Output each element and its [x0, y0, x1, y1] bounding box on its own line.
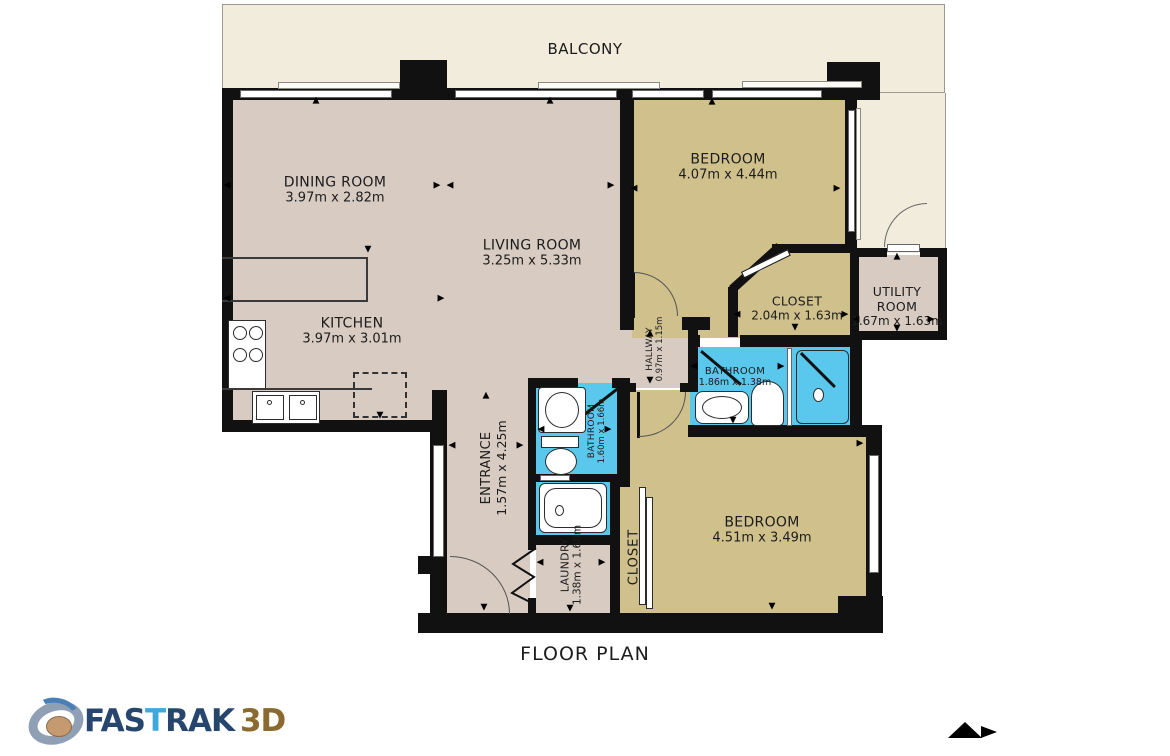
column-1	[400, 60, 447, 98]
shower-right-wall	[850, 335, 862, 437]
dimension-arrow: ▼	[894, 325, 901, 334]
room-dims: 3.97m x 2.82m	[284, 191, 386, 206]
page-title: FLOOR PLAN	[520, 643, 650, 665]
room-label-bathroom-main: BATHROOM 1.86m x 1.38m	[699, 366, 771, 388]
dimension-arrow: ▶	[599, 559, 606, 568]
room-dims: 1.86m x 1.38m	[699, 377, 771, 388]
dimension-arrow: ▼	[730, 417, 737, 426]
room-name: HALLWAY	[645, 317, 655, 382]
room-label-living: LIVING ROOM 3.25m x 5.33m	[482, 238, 581, 269]
room-dims: 1.57m x 4.25m	[494, 420, 509, 515]
room-label-dining: DINING ROOM 3.97m x 2.82m	[284, 175, 386, 206]
room-label-balcony: BALCONY	[547, 40, 622, 58]
bedroom1-bottom-wall-b	[682, 317, 710, 330]
dimension-arrow: ◀	[734, 311, 741, 320]
room-name: BATHROOM	[699, 366, 771, 377]
door-threshold	[540, 475, 570, 481]
dimension-arrow: ▲	[547, 97, 554, 106]
room-dims: 4.51m x 3.49m	[712, 531, 811, 546]
dimension-arrow: ▲	[647, 330, 654, 339]
floor-plan-canvas: BALCONY DINING ROOM 3.97m x 2.82m LIVING…	[0, 0, 1170, 738]
room-name: CLOSET	[751, 294, 843, 309]
room-dims: 4.07m x 4.44m	[678, 168, 777, 183]
window-sill	[742, 81, 862, 88]
ensuite-sink-basin	[545, 392, 579, 428]
room-dims: 3.97m x 3.01m	[302, 332, 401, 347]
room-label-closet-2: CLOSET	[627, 529, 642, 586]
column-2	[827, 62, 880, 98]
window	[433, 445, 444, 557]
shower-drain-icon	[813, 388, 824, 402]
dimension-arrow: ▶	[842, 311, 849, 320]
room-name: DINING ROOM	[284, 175, 386, 191]
compass-triangle-up	[948, 722, 982, 738]
room-name: BATHROOM	[587, 399, 597, 464]
counter-edge	[366, 257, 368, 302]
room-label-closet-1: CLOSET 2.04m x 1.63m	[751, 294, 843, 323]
dimension-arrow: ◀	[449, 442, 456, 451]
faucet-icon	[267, 400, 272, 405]
dimension-arrow: ▶	[605, 426, 612, 435]
bathrow-top-wall-a	[688, 335, 700, 347]
room-name: LAUNDRY	[559, 525, 572, 605]
window	[632, 90, 704, 98]
bottom-wall	[418, 613, 883, 633]
logo-text: FASTRAK3D	[84, 703, 285, 739]
hallway-bottom-jamb-b	[680, 383, 690, 392]
kitchen-right-wall	[432, 390, 447, 432]
sliding-door-panel	[646, 497, 653, 609]
kitchen-sink-bowl	[256, 395, 284, 420]
entry-step-wall	[418, 556, 447, 574]
dimension-arrow: ◀	[631, 185, 638, 194]
dimension-arrow: ▼	[567, 605, 574, 614]
entrance-right-wall-a	[528, 378, 536, 550]
kitchen-sink-bowl	[289, 395, 317, 420]
dimension-arrow: ▶	[928, 316, 935, 325]
counter-edge	[222, 300, 368, 302]
dimension-arrow: ▶	[434, 182, 441, 191]
room-dims: 2.04m x 1.63m	[751, 309, 843, 323]
room-name: LIVING ROOM	[482, 238, 581, 254]
room-name: KITCHEN	[302, 316, 401, 332]
dimension-arrow: ◀	[691, 363, 698, 372]
laundry-right-wall	[610, 480, 620, 615]
window	[848, 110, 855, 232]
counter-edge	[222, 388, 372, 390]
room-dims: 0.97m x 1.15m	[655, 317, 665, 382]
dimension-arrow: ▶	[778, 363, 785, 372]
room-label-bedroom-2: BEDROOM 4.51m x 3.49m	[712, 515, 811, 546]
room-label-bedroom-1: BEDROOM 4.07m x 4.44m	[678, 152, 777, 183]
room-name: BEDROOM	[678, 152, 777, 168]
room-dims: 3.25m x 5.33m	[482, 254, 581, 269]
dimension-arrow: ▼	[647, 377, 654, 386]
dimension-arrow: ◀	[537, 559, 544, 568]
room-name: BALCONY	[547, 40, 622, 58]
logo-text-rak: RAK	[165, 703, 234, 739]
window	[869, 455, 879, 573]
dimension-arrow: ▲	[313, 97, 320, 106]
dimension-arrow: ▼	[365, 246, 372, 255]
shower-divider	[787, 348, 792, 426]
room-name: BEDROOM	[712, 515, 811, 531]
bedroom2-top-wall	[688, 425, 868, 437]
dimension-arrow: ▼	[481, 604, 488, 613]
dimension-arrow: ▼	[769, 603, 776, 612]
logo-text-3d: 3D	[240, 703, 285, 739]
dimension-arrow: ▶	[834, 185, 841, 194]
dimension-arrow: ▶	[438, 295, 445, 304]
compass-triangle-right	[981, 726, 997, 738]
shower-tray	[796, 350, 849, 424]
dimension-arrow: ▶	[857, 440, 864, 449]
ensuite-toilet-bowl	[545, 448, 577, 475]
bifold-door	[505, 540, 545, 610]
dimension-arrow: ▲	[709, 98, 716, 107]
room-label-laundry: LAUNDRY 1.38m x 1.68m	[559, 525, 584, 605]
room-dims: 1.38m x 1.68m	[572, 525, 584, 605]
dimension-arrow: ◀	[224, 182, 231, 191]
window-sill	[538, 82, 660, 89]
window-sill	[278, 82, 400, 89]
bathtub-inner	[544, 488, 602, 528]
dimension-arrow: ▲	[894, 253, 901, 262]
door-threshold	[887, 244, 920, 252]
counter-edge	[222, 257, 368, 259]
bathtub-drain-icon	[555, 505, 564, 516]
room-label-entrance: ENTRANCE 1.57m x 4.25m	[479, 420, 509, 515]
room-label-kitchen: KITCHEN 3.97m x 3.01m	[302, 316, 401, 347]
logo-text-t: T	[145, 703, 165, 739]
window	[712, 90, 822, 98]
faucet-icon	[300, 400, 305, 405]
room-name: CLOSET	[627, 529, 642, 586]
dimension-arrow: ◀	[447, 182, 454, 191]
dimension-arrow: ▶	[608, 182, 615, 191]
stove-burner-icon	[249, 348, 263, 362]
window-sill	[856, 108, 861, 240]
bathroom-ensuite-right-wall	[617, 378, 630, 487]
room-name: ENTRANCE	[479, 420, 494, 515]
room-name: UTILITY ROOM	[860, 284, 934, 314]
stove-burner-icon	[249, 326, 263, 340]
dimension-arrow: ◀	[538, 426, 545, 435]
bathrow-top-wall-b	[740, 335, 855, 347]
window	[455, 90, 617, 98]
dimension-arrow: ▼	[377, 412, 384, 421]
logo-text-fas: FAS	[84, 703, 145, 739]
bedroom1-bottom-wall-a	[620, 317, 634, 330]
dimension-arrow: ▲	[483, 392, 490, 401]
dimension-arrow: ▶	[517, 442, 524, 451]
ensuite-toilet-tank	[541, 436, 579, 448]
stove-burner-icon	[233, 348, 247, 362]
dimension-arrow: ◀	[224, 295, 231, 304]
logo-swirl-center	[46, 716, 72, 737]
dimension-arrow: ▼	[792, 324, 799, 333]
page-title-text: FLOOR PLAN	[520, 643, 650, 665]
stove-burner-icon	[233, 326, 247, 340]
room-label-hallway: HALLWAY 0.97m x 1.15m	[645, 317, 665, 382]
dimension-arrow: ◀	[853, 316, 860, 325]
compass-icon	[948, 722, 1008, 738]
